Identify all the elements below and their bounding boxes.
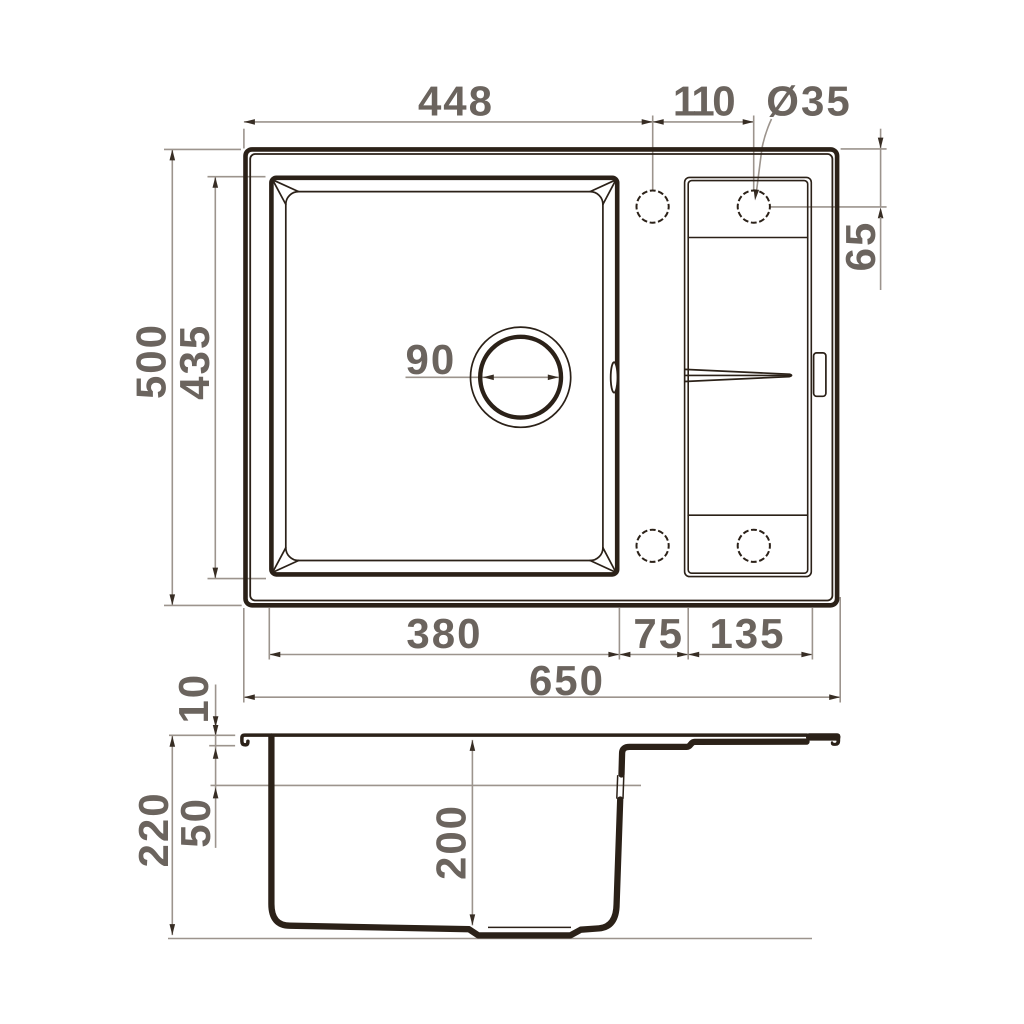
svg-text:75: 75	[633, 610, 684, 657]
svg-text:380: 380	[406, 610, 482, 657]
svg-text:110: 110	[673, 77, 734, 124]
svg-text:90: 90	[405, 336, 456, 383]
svg-text:220: 220	[130, 791, 177, 867]
svg-text:650: 650	[529, 657, 605, 704]
svg-text:200: 200	[428, 804, 475, 880]
svg-text:435: 435	[171, 324, 218, 400]
svg-text:10: 10	[170, 673, 217, 724]
svg-text:65: 65	[837, 221, 884, 272]
svg-text:135: 135	[709, 610, 785, 657]
svg-text:50: 50	[172, 797, 219, 848]
svg-text:Ø35: Ø35	[766, 77, 851, 124]
svg-text:448: 448	[418, 77, 494, 124]
svg-text:500: 500	[128, 323, 175, 399]
